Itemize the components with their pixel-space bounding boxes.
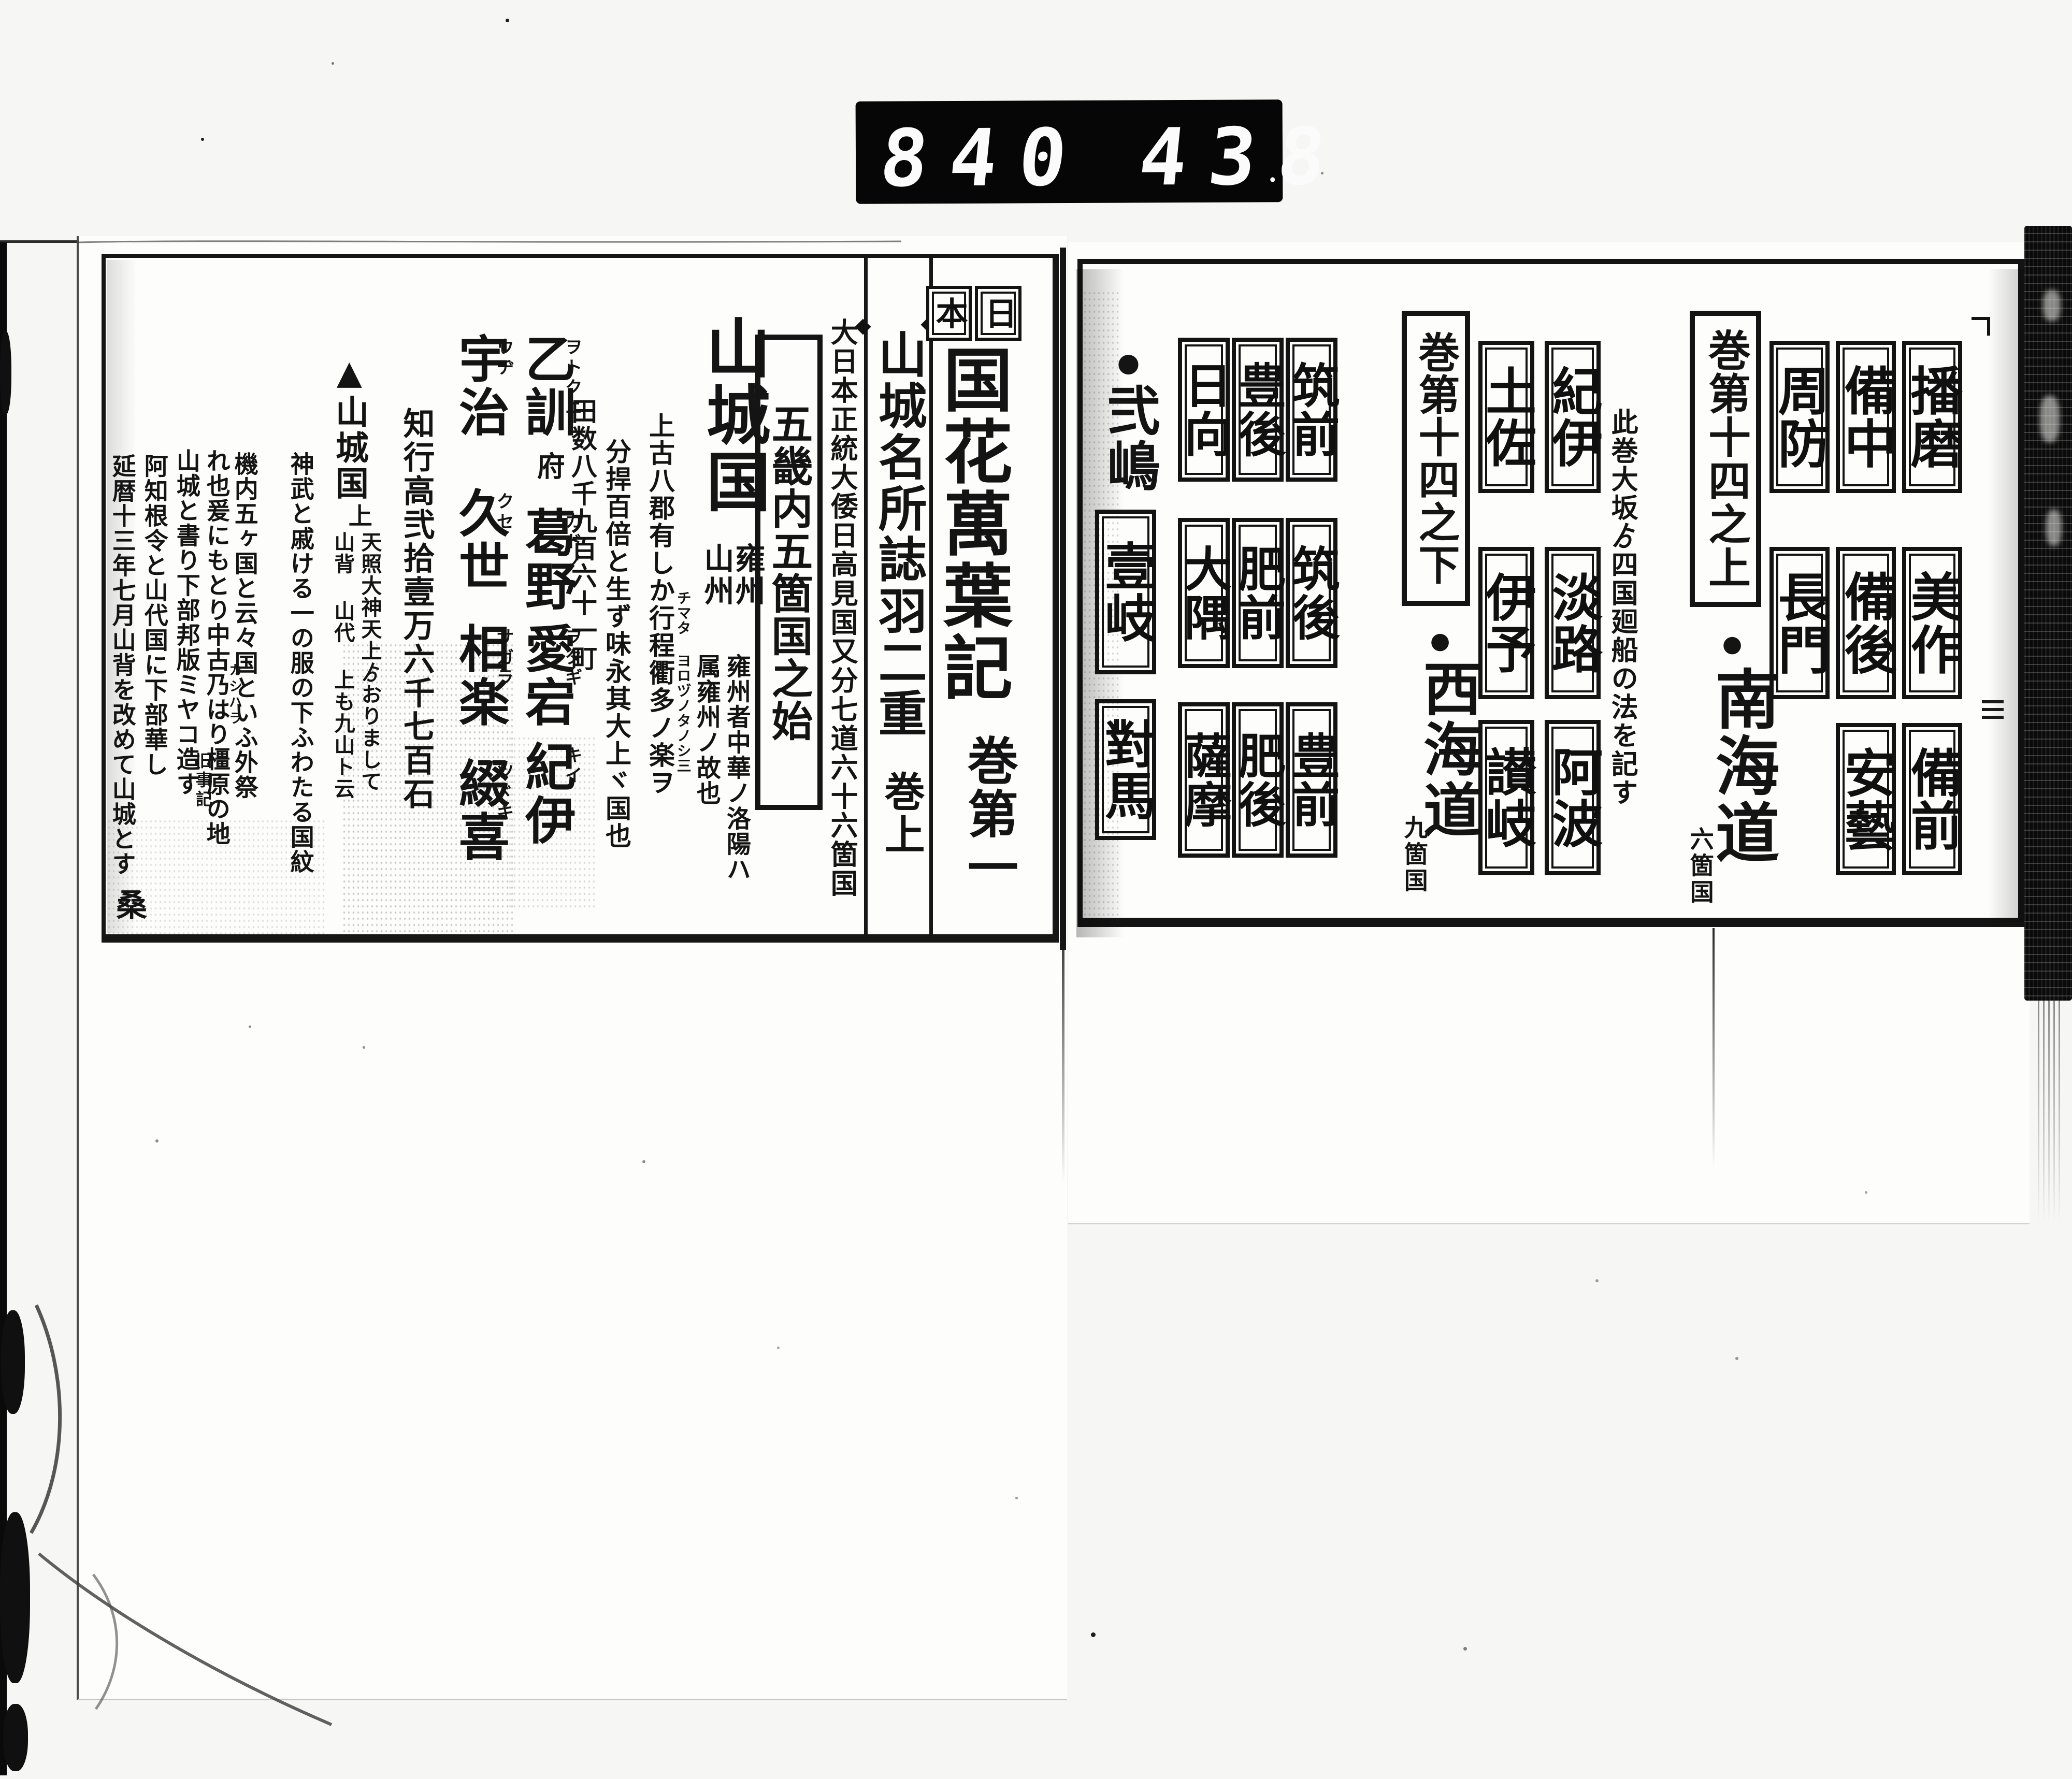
province-box: 伊予 [1478,547,1534,699]
province-box: 肥前 [1232,518,1284,668]
district-kana: ヲタギ [563,628,581,688]
fore-edge-ghost-mark [2040,396,2060,442]
province-name: 筑前 [1287,361,1336,458]
fold-tail-line [1713,928,1715,1167]
dust-speck [1321,172,1323,175]
district-kana: ウヂ [494,338,513,378]
province-name: 薩摩 [1179,731,1228,829]
edge-blot [0,1512,30,1683]
province-alt-name: 山州 [700,543,732,608]
road-bullet: ● [1720,631,1744,660]
province-name: 長門 [1773,570,1826,676]
yoshu-note-left: 属雍州ノ故也 [693,654,719,806]
province-box: 讃岐 [1478,720,1534,875]
province-name: 阿波 [1547,746,1599,849]
gokinai-label: 五畿内五箇国之始 [767,402,811,742]
etymology-citation: 旧事記 [194,752,211,809]
dust-speck [1595,1279,1599,1282]
dust-speck [363,1046,365,1049]
dust-speck [1091,1632,1096,1637]
geo-note: 上古八郡有しか行程衢多ノ楽ヲ [646,412,674,797]
province-name: 淡路 [1547,571,1599,675]
ink-stain [107,818,324,937]
province-name: 大隅 [1179,544,1228,642]
etymology-kana: カシハラ [227,663,241,727]
dust-speck [506,19,509,22]
seven-roads-note: 大日本正統大倭日高見国又分七道六十六箇国 [828,318,857,898]
province-name: 周防 [1773,364,1826,470]
ink-stain [342,642,513,937]
province-box: 筑前 [1286,338,1337,482]
province-name: 肥前 [1233,544,1282,642]
road-count-label: 九箇国 [1402,815,1427,894]
province-name: 備前 [1906,746,1959,852]
dust-speck [1015,1497,1018,1499]
province-box: 紀伊 [1545,341,1601,493]
road-label: 西海道 [1416,659,1478,841]
dust-speck [155,1139,159,1142]
etymology-column: 山城と書り下部邦版ミヤコ造す [174,449,199,797]
dust-speck [1463,1647,1467,1651]
province-name: 豊後 [1233,361,1282,458]
edge-blot [0,331,11,414]
gutter-tail-line [1062,950,1064,1183]
edge-blot [3,1704,28,1771]
province-name: 安藝 [1839,746,1892,852]
dust-speck [1735,1357,1738,1360]
etymology-column: 延暦十三年七月山背を改めて山城とす [110,454,135,876]
counter-decimal-dot [1270,177,1275,182]
province-box: 美作 [1902,547,1962,699]
group-tick-marks [1982,700,2004,724]
dust-speck [201,138,204,141]
dust-speck [249,1025,251,1028]
etymology-column: 機内五ヶ国と云々国といふ外祭 [232,452,257,800]
province-box: 播磨 [1902,341,1962,493]
province-box: 對馬 [1095,699,1156,840]
dust-speck [777,1347,780,1349]
etymology-column: 阿知根令と山代国に下部華し [142,454,167,777]
etymology-column: 神武と戚ける一の服の下ふわたる国紋 [288,452,313,874]
counter-left-value: 840 [876,112,1092,205]
district-kana: ヲトクニ [563,338,581,418]
province-name: 日向 [1179,361,1228,458]
scanned-book-spread: 840 438 日 本 国花萬葉記 巻第一 山城名所誌羽二重 巻上 大日本正統大… [0,0,2072,1779]
country-char: 日 [982,297,1014,330]
province-box: 淡路 [1545,547,1601,699]
province-alt-name: 雍州 [731,543,763,608]
dust-speck [642,1160,645,1163]
province-name: 美作 [1906,570,1959,676]
volume-label: 巻第十四之下 [1414,331,1458,586]
column-rule [864,258,868,937]
book-title: 国花萬葉記 [936,344,1009,704]
province-name: 豊前 [1287,731,1336,829]
binding-gutter-line [1060,248,1066,950]
geo-note-kana: チマタ ヨロヅノタノシ三 [675,590,691,773]
province-box: 備前 [1902,723,1962,875]
province-name: 壹岐 [1100,540,1152,644]
province-name: 土佐 [1480,365,1532,469]
fore-edge-band [2024,226,2072,1001]
province-box: 日向 [1178,338,1230,482]
province-name: 肥後 [1233,731,1282,829]
edge-blot [1,1310,25,1414]
route-note: 此巻大坂ゟ四国廻船の法を記す [1608,408,1636,807]
book-volume: 巻第一 [961,734,1015,894]
district-kana: カドノ [563,512,581,572]
province-name: 讃岐 [1480,746,1532,849]
frame-counter-display: 840 438 [856,99,1283,204]
country-char: 本 [932,297,965,330]
road-label: 南海道 [1707,666,1775,866]
province-title: 山城国 [698,315,766,515]
province-box: 土佐 [1478,341,1534,493]
road-count-label: 六箇国 [1688,827,1713,906]
province-box: 備中 [1836,341,1896,493]
district-capital-mark: 府 [534,452,563,482]
province-box: 豊前 [1286,702,1337,858]
province-name: 對馬 [1100,718,1152,821]
section-subvolume: 巻上 [880,771,923,857]
province-name: 紀伊 [1547,365,1599,469]
country-char-box: 本 [926,286,972,341]
volume-label-box: 巻第十四之下 [1402,311,1470,606]
section-subtitle: 山城名所誌羽二重 [872,329,924,740]
province-box: 筑後 [1286,518,1337,668]
volume-label: 巻第十四之上 [1703,328,1748,589]
province-box: 豊後 [1232,338,1284,482]
ink-stain [508,735,596,912]
etymology-head: ▲山城国 [332,353,367,502]
province-name: 備中 [1839,364,1892,470]
fore-edge-shade [1988,269,2024,922]
dust-speck [332,62,334,65]
counter-right-value: 438 [1135,111,1351,204]
province-box: 薩摩 [1178,702,1230,858]
road-bullet: ● [1428,628,1452,657]
volume-label-box: 巻第十四之上 [1690,311,1761,607]
province-name: 筑後 [1287,544,1336,642]
province-name: 播磨 [1906,364,1959,470]
province-box: 大隅 [1178,518,1230,668]
fore-edge-tail [2038,1001,2062,1223]
province-box: 阿波 [1545,720,1601,875]
fore-edge-ghost-mark [2046,510,2062,546]
dust-speck [1865,1191,1867,1194]
province-box: 備後 [1836,547,1896,699]
province-name: 備後 [1839,570,1892,676]
group-corner-bracket [1972,317,1990,336]
province-box: 周防 [1769,341,1830,493]
yoshu-note-right: 雍州者中華ノ洛陽ハ [723,654,749,882]
district-kana: クセ [494,492,513,532]
etymology-head-sub: 上 [346,503,371,530]
province-box: 肥後 [1232,702,1284,858]
country-char-box: 日 [975,286,1021,341]
province-box: 安藝 [1836,723,1896,875]
fore-edge-ghost-mark [2043,290,2061,321]
province-name: 伊予 [1480,571,1532,675]
geo-note: 分捍百倍と生ず味永其大上ヾ国也 [603,438,630,850]
